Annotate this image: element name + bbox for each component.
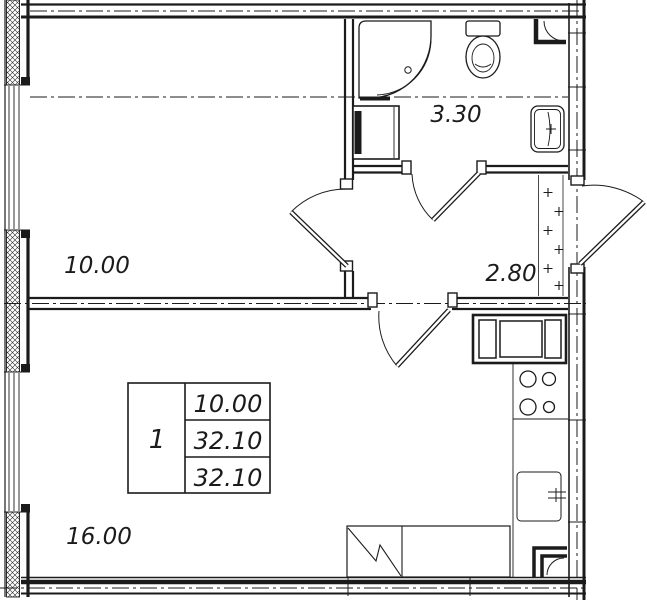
bottom-exterior-wall: [21, 577, 586, 596]
kitchen-counter: [513, 363, 568, 577]
apartment-info-table: 1 10.00 32.10 32.10: [128, 383, 270, 493]
kitchen-unit-icon: [473, 315, 566, 363]
door-entry: [580, 185, 644, 264]
interior-wall-vertical: [345, 19, 353, 298]
corner-shaft-icon: [534, 548, 567, 577]
table-living-area: 10.00: [194, 390, 263, 418]
door-room-lower: [379, 310, 449, 366]
kitchen-sink-icon: [517, 472, 566, 521]
axis-lines: [0, 0, 586, 600]
toilet-icon: [466, 21, 500, 78]
room-lower-area-label: 16.00: [66, 524, 132, 550]
table-overall-area: 32.10: [194, 464, 263, 492]
washing-machine-icon: [353, 106, 399, 159]
left-exterior-wall: [4, 0, 30, 597]
hallway-area-label: 2.80: [485, 261, 536, 287]
floor-plan: 10.00 3.30 2.80 16.00 1 10.00 32.10 32.1…: [0, 0, 647, 600]
door-room-upper: [291, 189, 347, 266]
bed-icon: [347, 526, 510, 577]
bathroom-area-label: 3.30: [430, 102, 481, 128]
door-bathroom: [412, 173, 479, 220]
bathroom-sink-icon: [531, 106, 564, 152]
entry-strip: [539, 175, 564, 296]
stove-icon: [520, 371, 556, 415]
vent-shaft-icon: [536, 19, 566, 42]
table-flat-number: 1: [149, 425, 166, 455]
table-total-area: 32.10: [194, 427, 263, 455]
bathroom-wall: [354, 166, 568, 173]
room-upper-area-label: 10.00: [64, 253, 130, 279]
shower-icon: [359, 21, 431, 99]
